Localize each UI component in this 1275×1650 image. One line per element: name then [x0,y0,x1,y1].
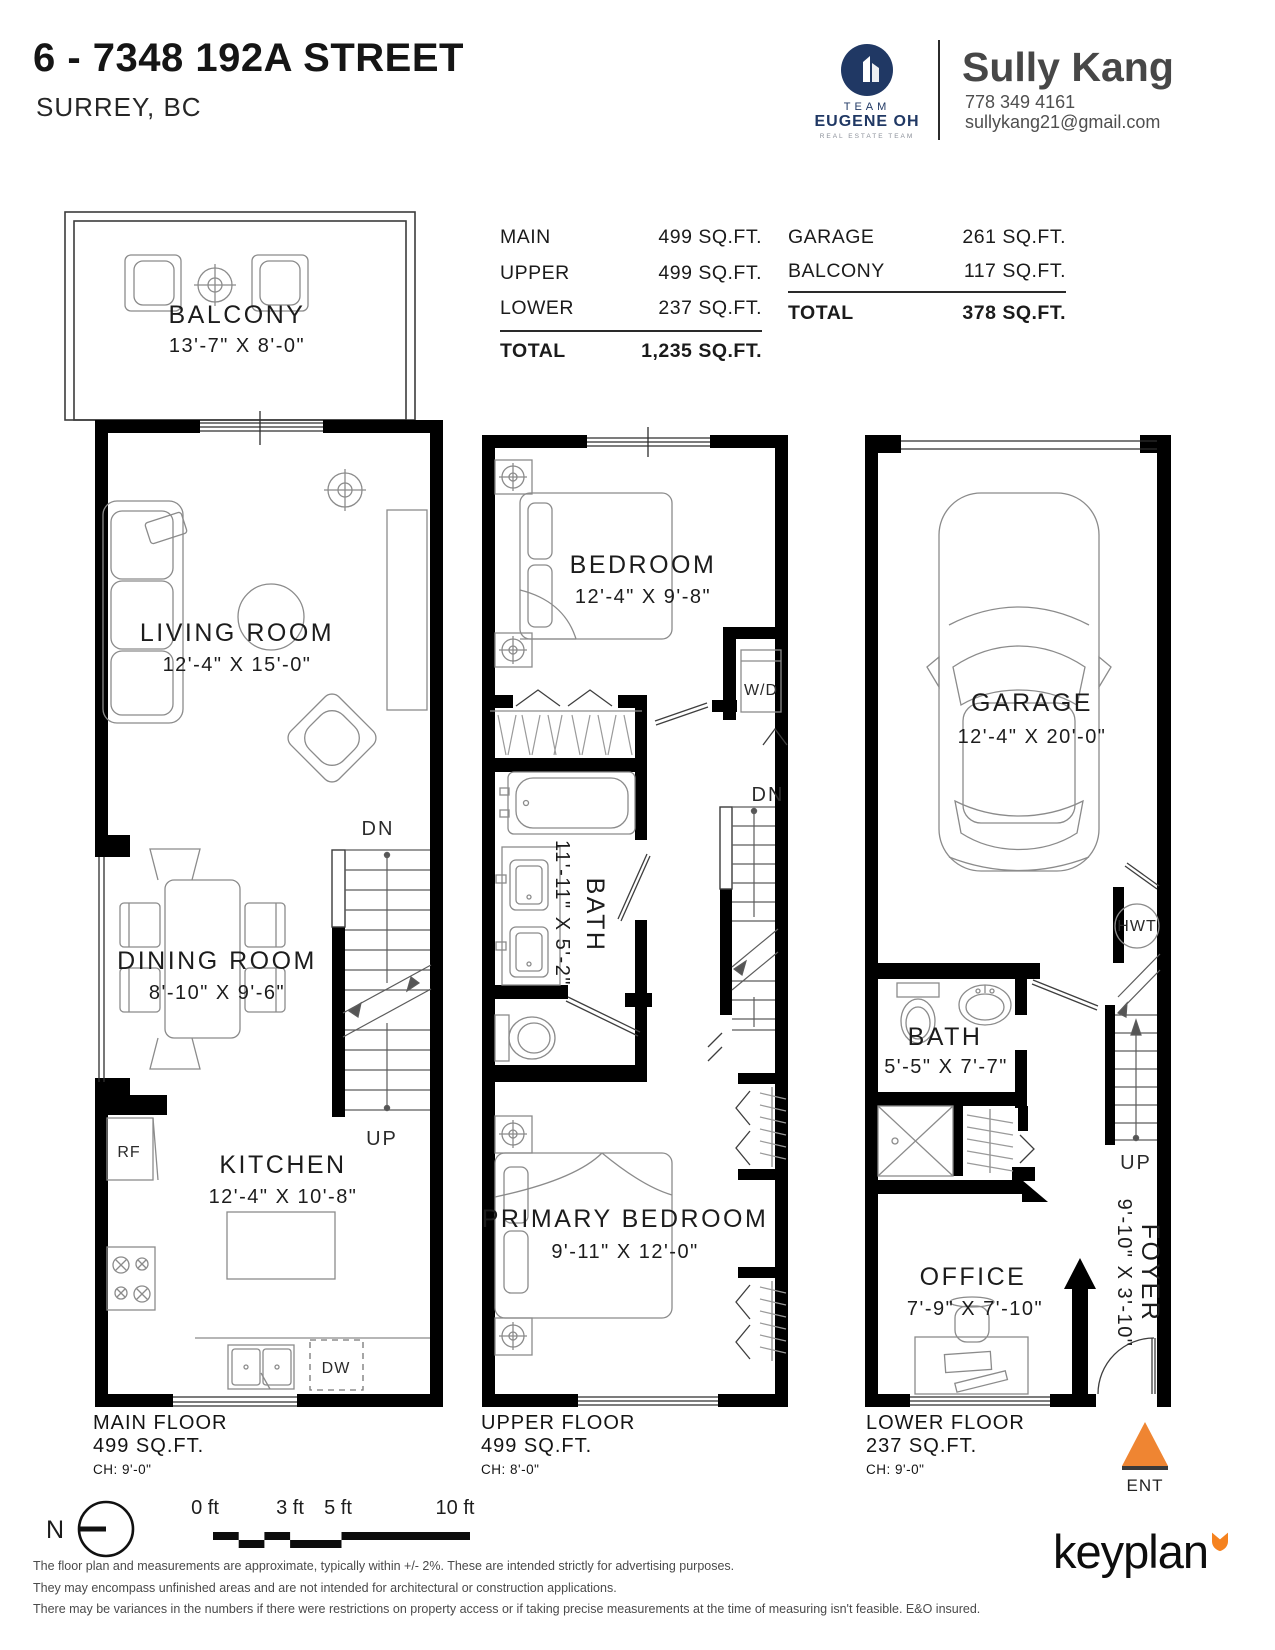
room-dims-bath-lower: 5'-5" X 7'-7" [884,1056,1008,1078]
staircase [708,807,778,1061]
lower-floor-plan: GARAGE 12'-4" X 20'-0" HWT BATH 5'-5" X … [815,405,1175,1410]
page-subtitle: SURREY, BC [36,92,202,123]
floor-area: 237 SQ.FT. [866,1435,1025,1458]
table-row: GARAGE261 SQ.FT. [788,220,1066,254]
room-label-bath-lower: BATH [908,1023,983,1051]
stair-label-dn: DN [362,818,395,840]
floor-ceiling-height: CH: 9'-0" [866,1460,1025,1480]
row-label: MAIN [500,226,551,249]
fox-icon [1208,1532,1232,1552]
bath-sink [959,985,1011,1025]
nightstand [495,1318,532,1355]
fridge-label: RF [117,1144,140,1161]
room-label-bedroom: BEDROOM [570,551,717,579]
scale-bar-segments [213,1532,470,1548]
accent-chair [284,690,380,786]
entrance-triangle-base [1122,1466,1168,1470]
total-label: TOTAL [500,340,566,363]
brokerage-logo-icon [839,42,895,98]
scale-bar: 0 ft 3 ft 5 ft 10 ft [178,1488,488,1558]
keyplan-wordmark: keyplan [1053,1528,1208,1575]
room-dims-office: 7'-9" X 7'-10" [907,1298,1043,1320]
floor-ceiling-height: CH: 8'-0" [481,1460,635,1480]
scale-tick: 5 ft [324,1497,352,1519]
table-total-row: TOTAL378 SQ.FT. [788,293,1066,333]
door-leaf [1032,980,1098,1010]
kitchen-sink [228,1345,294,1389]
upper-floor-plan: BEDROOM 12'-4" X 9'-8" W/D [450,405,800,1410]
room-dims-foyer: 9'-10" X 3'-10" [1113,1199,1135,1348]
staircase [1115,954,1160,1141]
window [910,1397,1050,1405]
room-dims-bedroom: 12'-4" X 9'-8" [575,586,711,608]
garage-door [901,441,1157,449]
table-total-row: TOTAL1,235 SQ.FT. [500,332,762,372]
north-arrow-icon: N [38,1492,148,1564]
room-dims-kitchen: 12'-4" X 10'-8" [209,1186,358,1208]
row-value: 499 SQ.FT. [658,226,762,249]
row-value: 499 SQ.FT. [658,262,762,285]
staircase [332,850,431,1111]
row-label: GARAGE [788,226,874,249]
floor-name: UPPER FLOOR [481,1412,635,1435]
floor-area: 499 SQ.FT. [481,1435,635,1458]
brokerage-logo: TEAM EUGENE OH REAL ESTATE TEAM [812,42,922,140]
agent-phone: 778 349 4161 [965,92,1075,113]
table-row: LOWER237 SQ.FT. [500,291,762,327]
disclaimer: The floor plan and measurements are appr… [33,1556,1013,1621]
scale-tick: 10 ft [436,1497,475,1519]
room-label-kitchen: KITCHEN [219,1151,346,1179]
bath-vanity [496,847,560,985]
row-value: 117 SQ.FT. [964,260,1066,283]
dishwasher-label: DW [322,1360,351,1377]
balcony-table [194,264,236,306]
header-divider [938,40,940,140]
car [927,493,1111,871]
window [99,857,104,1082]
room-dims-primary: 9'-11" X 12'-0" [551,1241,698,1263]
total-label: TOTAL [788,302,854,325]
sofa [103,501,187,723]
window [173,1397,297,1406]
page-title: 6 - 7348 192A STREET [33,36,464,81]
washer-dryer-label: W/D [744,682,778,699]
stair-label-up: UP [1120,1152,1152,1174]
disclaimer-line: They may encompass unfinished areas and … [33,1578,1013,1600]
room-dims-garage: 12'-4" X 20'-0" [958,726,1107,748]
table-row: UPPER499 SQ.FT. [500,256,762,292]
stove [107,1247,155,1310]
room-label-living: LIVING ROOM [140,619,334,647]
disclaimer-line: The floor plan and measurements are appr… [33,1556,1013,1578]
nightstand [495,460,532,494]
row-value: 237 SQ.FT. [658,297,762,320]
shower [878,1106,953,1176]
agent-name: Sully Kang [962,44,1174,91]
brokerage-name: EUGENE OH [812,113,922,131]
hwt-label: HWT [1117,918,1156,935]
floor-area: 499 SQ.FT. [93,1435,227,1458]
entrance-label: ENT [1120,1476,1170,1496]
bed [495,1153,672,1318]
room-label-bath-upper: BATH [581,878,609,953]
disclaimer-line: There may be variances in the numbers if… [33,1599,1013,1621]
table-row: BALCONY117 SQ.FT. [788,254,1066,288]
total-value: 378 SQ.FT. [962,302,1066,325]
floor-caption-lower: LOWER FLOOR 237 SQ.FT. CH: 9'-0" [866,1412,1025,1480]
row-label: BALCONY [788,260,885,283]
room-dims-bath-upper: 11'-11" X 5'-2" [551,840,573,986]
scale-tick: 0 ft [191,1497,219,1519]
ceiling-light-icon [324,469,366,511]
room-dims-dining: 8'-10" X 9'-6" [149,982,285,1004]
room-label-office: OFFICE [920,1263,1027,1291]
toilet [495,1015,555,1061]
nightstand [495,1116,532,1153]
main-floor-walls [95,420,443,1407]
stair-label-up: UP [366,1128,398,1150]
total-value: 1,235 SQ.FT. [641,340,762,363]
bathtub [500,772,635,834]
room-dims-balcony: 13'-7" X 8'-0" [169,335,305,357]
floor-name: MAIN FLOOR [93,1412,227,1435]
floorplan-page: 6 - 7348 192A STREET SURREY, BC TEAM EUG… [0,0,1275,1650]
floor-caption-main: MAIN FLOOR 499 SQ.FT. CH: 9'-0" [93,1412,227,1480]
room-label-dining: DINING ROOM [117,947,317,975]
floor-ceiling-height: CH: 9'-0" [93,1460,227,1480]
window [587,427,710,457]
media-console [387,510,427,710]
room-label-primary: PRIMARY BEDROOM [482,1205,769,1233]
window [578,1397,718,1405]
room-label-foyer: FOYER [1136,1224,1164,1323]
row-value: 261 SQ.FT. [962,226,1066,249]
agent-email: sullykang21@gmail.com [965,112,1160,133]
room-label-balcony: BALCONY [169,301,306,329]
brokerage-team-label: TEAM [812,101,922,113]
keyplan-logo: keyplan [1053,1528,1232,1575]
brokerage-tagline: REAL ESTATE TEAM [812,133,922,140]
scale-tick: 3 ft [276,1497,304,1519]
desk [915,1337,1028,1394]
room-label-garage: GARAGE [971,689,1093,717]
stair-label-dn: DN [752,784,785,806]
row-label: UPPER [500,262,570,285]
table-row: MAIN499 SQ.FT. [500,220,762,256]
main-floor-plan: BALCONY 13'-7" X 8'-0" [55,205,450,1410]
area-table-extras: GARAGE261 SQ.FT. BALCONY117 SQ.FT. TOTAL… [788,220,1066,333]
window [200,411,323,445]
area-table-floors: MAIN499 SQ.FT. UPPER499 SQ.FT. LOWER237 … [500,220,762,372]
kitchen-island [227,1212,335,1279]
north-label: N [46,1516,64,1544]
floor-name: LOWER FLOOR [866,1412,1025,1435]
entrance-marker: ENT [1120,1422,1170,1496]
floor-caption-upper: UPPER FLOOR 499 SQ.FT. CH: 8'-0" [481,1412,635,1480]
entrance-triangle-icon [1122,1422,1168,1466]
room-dims-living: 12'-4" X 15'-0" [163,654,312,676]
row-label: LOWER [500,297,574,320]
